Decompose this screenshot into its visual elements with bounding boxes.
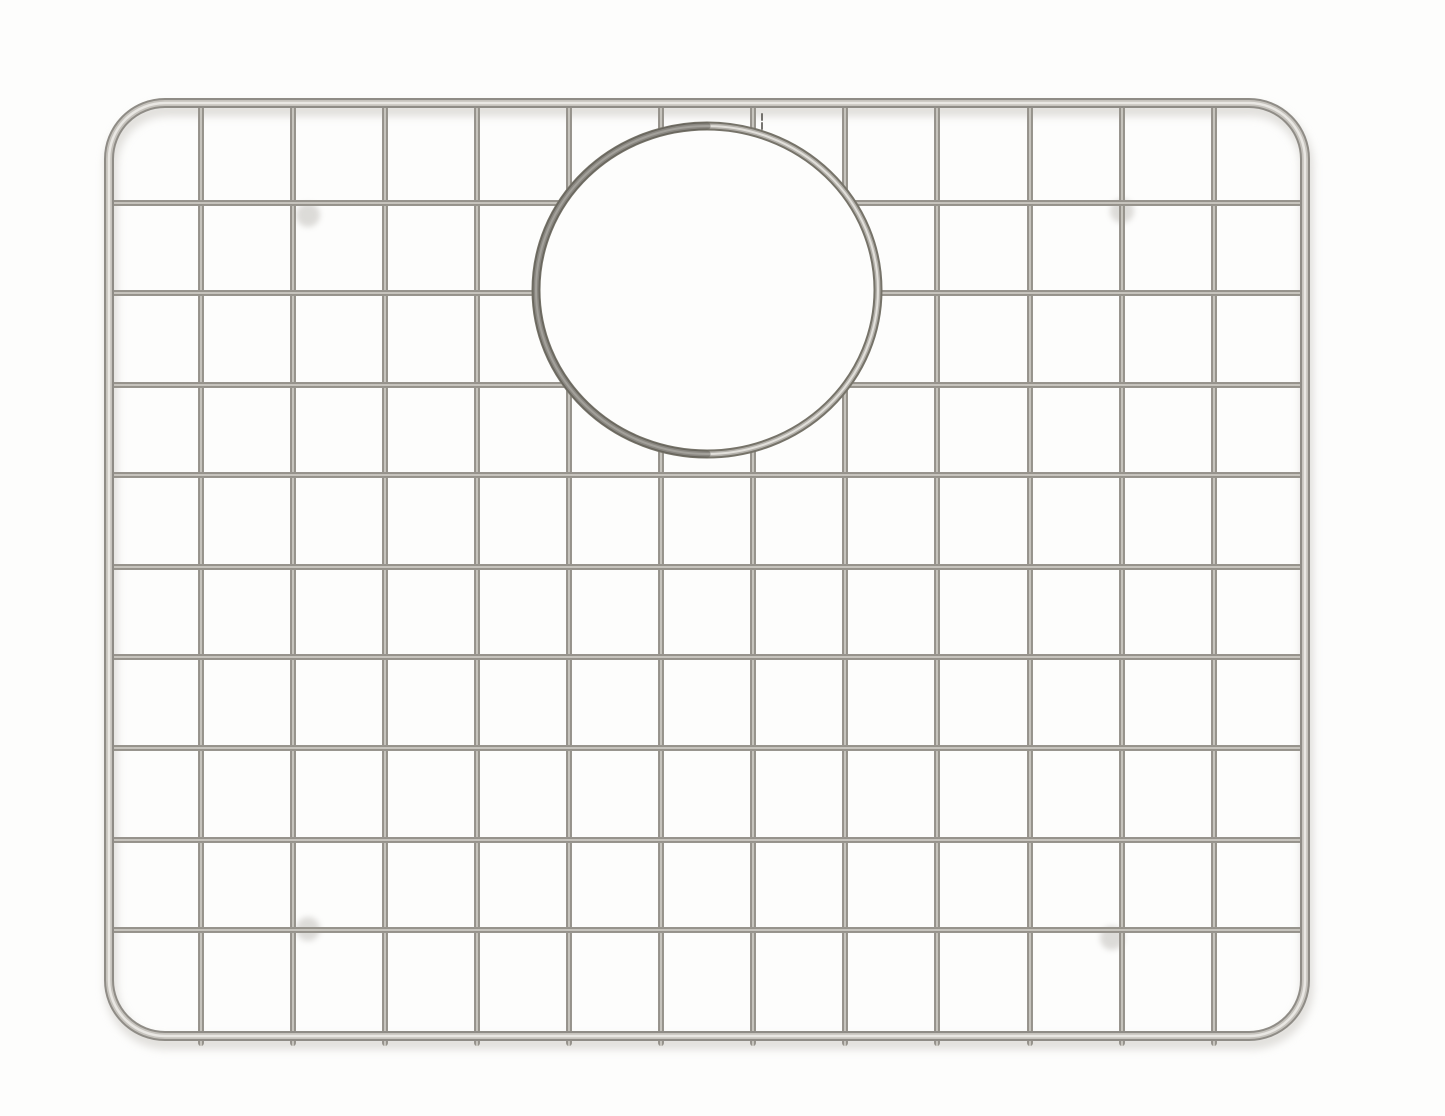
horizontal-wire xyxy=(109,837,1305,843)
drain-opening-ring xyxy=(536,114,878,454)
vertical-wire xyxy=(382,103,388,1046)
vertical-wire xyxy=(934,103,940,1046)
product-photo-sink-grid xyxy=(0,0,1445,1116)
horizontal-wire xyxy=(109,745,1305,751)
vertical-wire xyxy=(1027,103,1033,1046)
horizontal-wire xyxy=(109,564,1305,570)
sink-grid-illustration xyxy=(0,0,1445,1116)
vertical-wire xyxy=(658,103,664,1046)
horizontal-wire xyxy=(109,200,1305,206)
vertical-wire xyxy=(1119,103,1125,1046)
horizontal-wire xyxy=(109,472,1305,478)
horizontal-wire xyxy=(109,290,1305,296)
horizontal-wire xyxy=(109,927,1305,933)
vertical-wire xyxy=(1211,103,1217,1046)
vertical-wire xyxy=(474,103,480,1046)
vertical-wire xyxy=(566,103,572,1046)
horizontal-wire xyxy=(109,382,1305,388)
vertical-wire xyxy=(198,103,204,1046)
horizontal-wire xyxy=(109,654,1305,660)
rubber-foot xyxy=(296,203,320,227)
wire-grid-layer xyxy=(109,103,1305,1046)
vertical-wire xyxy=(290,103,296,1046)
vertical-wire xyxy=(750,103,756,1046)
vertical-wire xyxy=(842,103,848,1046)
